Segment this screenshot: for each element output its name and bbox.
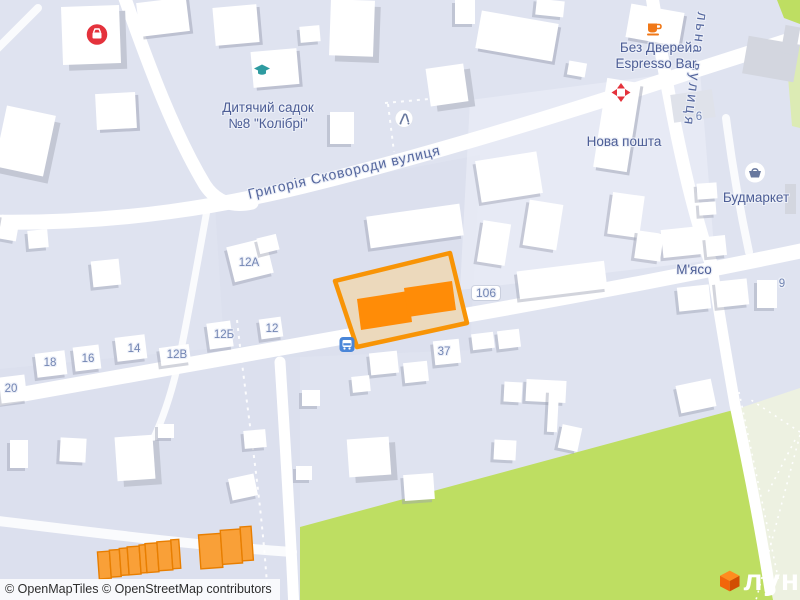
house-number-12А: 12А: [239, 257, 259, 269]
building: [59, 437, 86, 462]
building: [497, 329, 521, 350]
building: [95, 92, 137, 130]
house-number-12Б: 12Б: [214, 329, 234, 341]
playground-icon: [395, 109, 414, 133]
building: [525, 379, 566, 403]
house-number-18: 18: [44, 357, 57, 369]
logo-cube-icon: [720, 565, 740, 597]
building: [27, 229, 48, 249]
house-number-9: 9: [779, 278, 785, 290]
building: [136, 0, 190, 37]
building: [696, 182, 717, 199]
building: [567, 61, 587, 78]
footpath: [388, 104, 394, 152]
map-canvas[interactable]: Григорія Сковороди вулиця льна вулиця Ди…: [0, 0, 800, 600]
shop-pin-icon: [85, 23, 109, 52]
house-number-37: 37: [438, 346, 451, 358]
road-corner-topleft: [0, 8, 38, 52]
building: [699, 201, 717, 215]
building: [677, 284, 711, 311]
house-number-106: 106: [472, 286, 500, 300]
graduation-cap-icon: [251, 60, 273, 87]
building: [115, 435, 156, 482]
building: [455, 0, 475, 24]
brand-logo: лун: [720, 564, 800, 598]
building: [493, 439, 516, 460]
coffee-cup-icon: [645, 21, 663, 42]
green-patch: [777, 0, 800, 24]
building: [302, 390, 320, 406]
poi-label-nova-poshta: Нова пошта: [587, 134, 662, 150]
attribution: © OpenMapTiles © OpenStreetMap contribut…: [0, 579, 280, 600]
building: [705, 235, 727, 257]
building: [715, 278, 750, 307]
building: [426, 64, 469, 107]
house-number-20: 20: [5, 383, 18, 395]
building: [634, 230, 664, 261]
building: [296, 466, 312, 480]
building: [471, 332, 495, 351]
building: [403, 361, 429, 383]
building: [503, 382, 522, 403]
nova-poshta-arrows-icon: [609, 81, 633, 110]
building: [403, 473, 435, 501]
building: [91, 259, 122, 288]
building: [347, 437, 392, 478]
logo-text: лун: [744, 566, 800, 596]
building: [330, 112, 354, 144]
poi-label-espresso-bar: Без Дверей Espresso Bar: [615, 40, 696, 72]
building: [535, 0, 565, 17]
building: [10, 440, 28, 468]
shopping-basket-icon: [745, 162, 766, 188]
house-number-14: 14: [128, 343, 141, 355]
poi-label-budmarket: Будмаркет: [723, 190, 789, 206]
house-number-12: 12: [266, 323, 279, 335]
building: [299, 25, 320, 43]
building: [757, 280, 777, 308]
building: [661, 226, 704, 258]
building: [351, 375, 371, 393]
building: [369, 351, 399, 376]
poi-label-myaso: М'ясо: [676, 262, 712, 278]
house-number-6: 6: [696, 111, 702, 123]
building: [243, 429, 266, 449]
house-number-16: 16: [82, 353, 95, 365]
bus-stop-icon: [340, 337, 355, 357]
poi-label-kindergarten: Дитячий садок №8 "Колібрі": [222, 100, 314, 132]
house-number-12В: 12В: [167, 349, 187, 361]
building: [212, 4, 259, 46]
building: [329, 0, 375, 57]
building: [158, 424, 174, 438]
building: [523, 200, 564, 251]
